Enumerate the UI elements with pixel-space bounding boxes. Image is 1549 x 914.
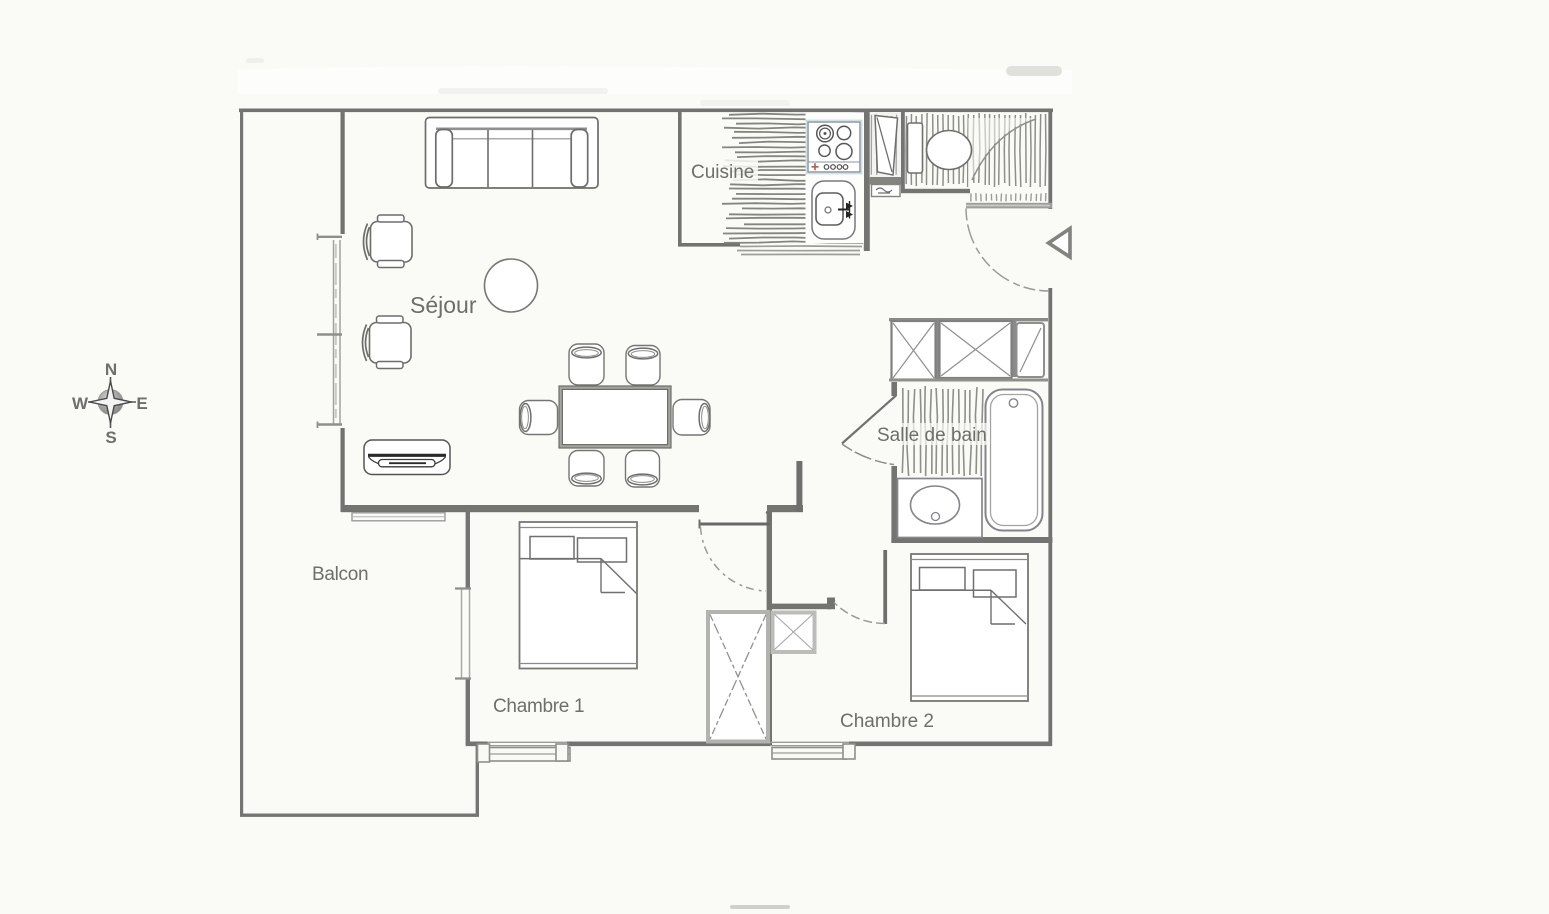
svg-text:Séjour: Séjour [410,292,477,318]
svg-text:W: W [72,394,89,413]
svg-text:Cuisine: Cuisine [691,162,754,183]
svg-text:Salle de bain: Salle de bain [877,425,987,446]
svg-text:Chambre 1: Chambre 1 [493,696,584,717]
svg-text:Chambre 2: Chambre 2 [840,711,934,732]
svg-text:S: S [105,428,116,447]
svg-text:Balcon: Balcon [312,564,368,585]
svg-text:N: N [105,360,117,379]
svg-text:E: E [136,394,147,413]
